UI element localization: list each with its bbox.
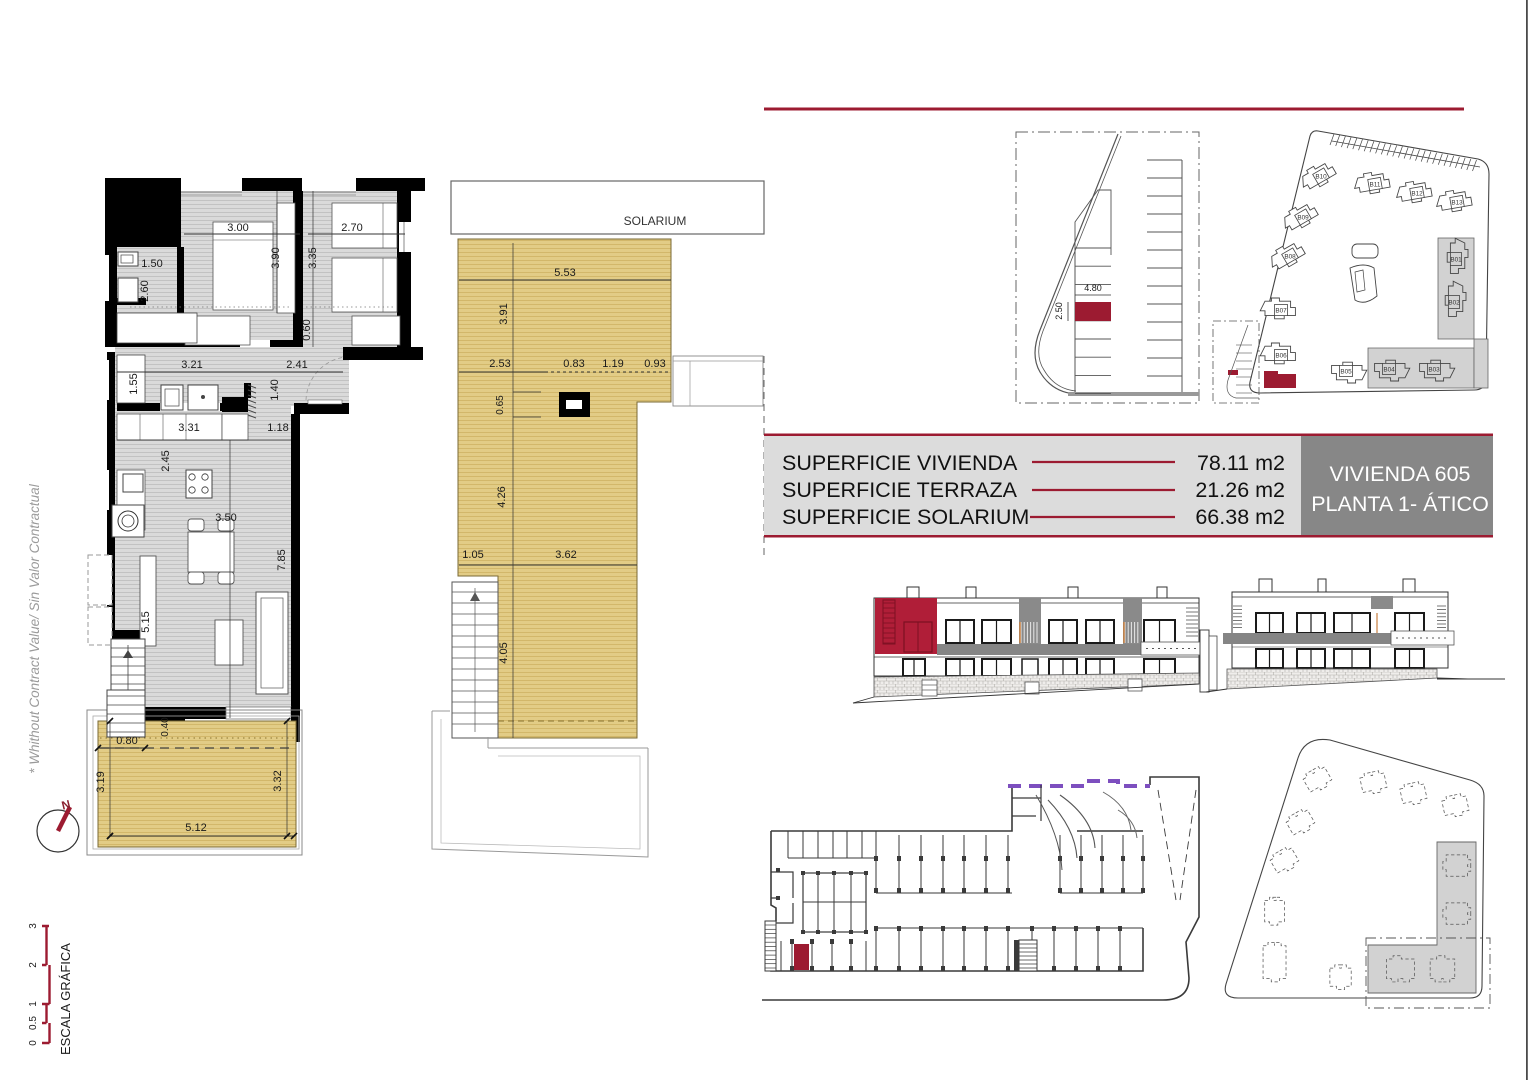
svg-text:3.62: 3.62 [555, 549, 576, 561]
svg-text:B04: B04 [1383, 366, 1395, 373]
svg-text:3: 3 [28, 923, 39, 929]
svg-text:0.40: 0.40 [160, 717, 171, 737]
svg-text:3.50: 3.50 [215, 512, 236, 524]
svg-text:7.85: 7.85 [276, 549, 288, 570]
svg-text:3.90: 3.90 [270, 247, 282, 268]
svg-text:2.70: 2.70 [341, 222, 362, 234]
svg-text:1.19: 1.19 [602, 358, 623, 370]
svg-text:B06: B06 [1275, 352, 1287, 359]
svg-text:5.12: 5.12 [185, 822, 206, 834]
svg-text:1.18: 1.18 [267, 422, 288, 434]
svg-text:2.41: 2.41 [286, 359, 307, 371]
svg-text:5.15: 5.15 [140, 611, 152, 632]
svg-text:B02: B02 [1448, 299, 1460, 306]
svg-text:SOLARIUM: SOLARIUM [624, 214, 687, 228]
svg-text:B08: B08 [1284, 253, 1296, 260]
svg-text:1: 1 [28, 1001, 39, 1007]
svg-text:* Whithout Contract Value/ Sin: * Whithout Contract Value/ Sin Valor Con… [27, 483, 42, 773]
svg-text:B13: B13 [1451, 199, 1463, 206]
svg-text:B10: B10 [1315, 173, 1327, 180]
svg-text:B05: B05 [1340, 368, 1352, 375]
svg-text:1.40: 1.40 [269, 379, 281, 400]
svg-text:4.05: 4.05 [498, 642, 510, 663]
svg-text:B03: B03 [1428, 366, 1440, 373]
svg-text:3.00: 3.00 [227, 222, 248, 234]
svg-text:3.35: 3.35 [307, 247, 319, 268]
svg-text:VIVIENDA 605: VIVIENDA 605 [1329, 462, 1470, 486]
svg-text:B11: B11 [1370, 181, 1381, 188]
svg-text:SUPERFICIE TERRAZA: SUPERFICIE TERRAZA [782, 478, 1018, 502]
svg-text:0.93: 0.93 [644, 358, 665, 370]
svg-text:4.26: 4.26 [496, 486, 508, 507]
svg-text:2.45: 2.45 [160, 450, 172, 471]
svg-text:0.83: 0.83 [563, 358, 584, 370]
svg-text:78.11 m2: 78.11 m2 [1197, 451, 1285, 475]
svg-text:ESCALA GRÁFICA: ESCALA GRÁFICA [58, 943, 73, 1055]
svg-text:3.31: 3.31 [178, 422, 199, 434]
svg-text:SUPERFICIE VIVIENDA: SUPERFICIE VIVIENDA [782, 451, 1018, 475]
svg-text:0.60: 0.60 [301, 319, 313, 340]
svg-text:4.80: 4.80 [1084, 283, 1102, 293]
svg-text:3.21: 3.21 [181, 359, 202, 371]
svg-text:1.05: 1.05 [462, 549, 483, 561]
svg-text:0.80: 0.80 [116, 735, 137, 747]
svg-text:3.32: 3.32 [272, 770, 284, 791]
svg-text:3.19: 3.19 [95, 771, 107, 792]
svg-text:66.38 m2: 66.38 m2 [1195, 505, 1285, 529]
svg-text:5.53: 5.53 [554, 267, 575, 279]
svg-text:0.65: 0.65 [495, 395, 506, 415]
svg-text:SUPERFICIE SOLARIUM: SUPERFICIE SOLARIUM [782, 505, 1029, 529]
svg-text:PLANTA 1- ÁTICO: PLANTA 1- ÁTICO [1311, 491, 1489, 516]
svg-text:0: 0 [28, 1040, 39, 1046]
svg-text:1.55: 1.55 [128, 373, 140, 394]
svg-text:B01: B01 [1450, 256, 1462, 263]
svg-text:2: 2 [28, 962, 39, 968]
svg-text:2.50: 2.50 [1054, 302, 1064, 320]
svg-text:B07: B07 [1275, 307, 1287, 314]
svg-text:1.50: 1.50 [141, 258, 162, 270]
svg-text:2.60: 2.60 [139, 280, 151, 301]
svg-text:B12: B12 [1411, 190, 1423, 197]
svg-text:3.91: 3.91 [498, 303, 510, 324]
svg-text:21.26 m2: 21.26 m2 [1195, 478, 1285, 502]
svg-text:B09: B09 [1297, 214, 1309, 221]
svg-text:2.53: 2.53 [489, 358, 510, 370]
svg-text:0.5: 0.5 [28, 1016, 39, 1030]
